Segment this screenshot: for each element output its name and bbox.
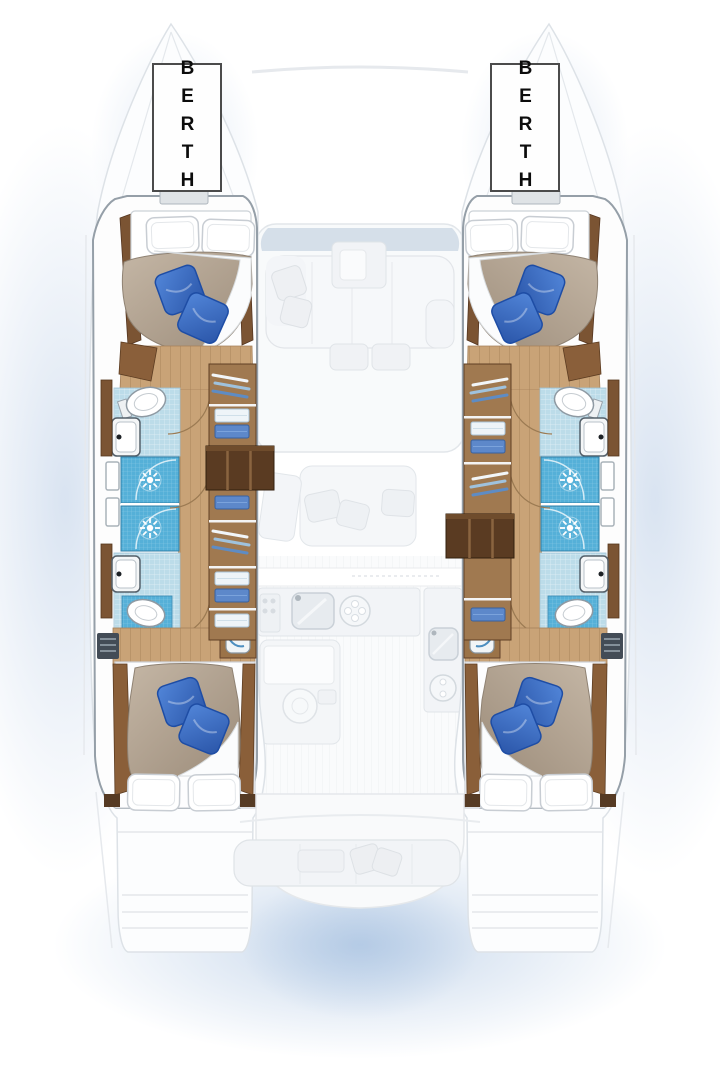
floorplan-image: BERTH BERTH — [0, 0, 720, 1080]
galley-bulkhead — [258, 568, 462, 586]
companionway-steps-port — [206, 446, 274, 490]
dinette-ghost — [258, 466, 416, 546]
galley-sink — [292, 593, 334, 629]
cockpit-bench — [234, 840, 460, 886]
catamaran-floorplan — [0, 0, 720, 1080]
bridge-deck-ghost — [252, 67, 468, 794]
galley-island — [260, 640, 340, 744]
cockpit-ghost — [234, 794, 480, 908]
stove-burner — [340, 596, 370, 626]
berth-label-starboard: BERTH — [490, 63, 560, 192]
berth-label-port: BERTH — [152, 63, 222, 192]
companionway-steps-starboard — [446, 514, 514, 558]
forward-crossbeam — [252, 67, 468, 72]
galley-sink-2 — [429, 628, 458, 660]
saloon-console — [332, 242, 386, 288]
